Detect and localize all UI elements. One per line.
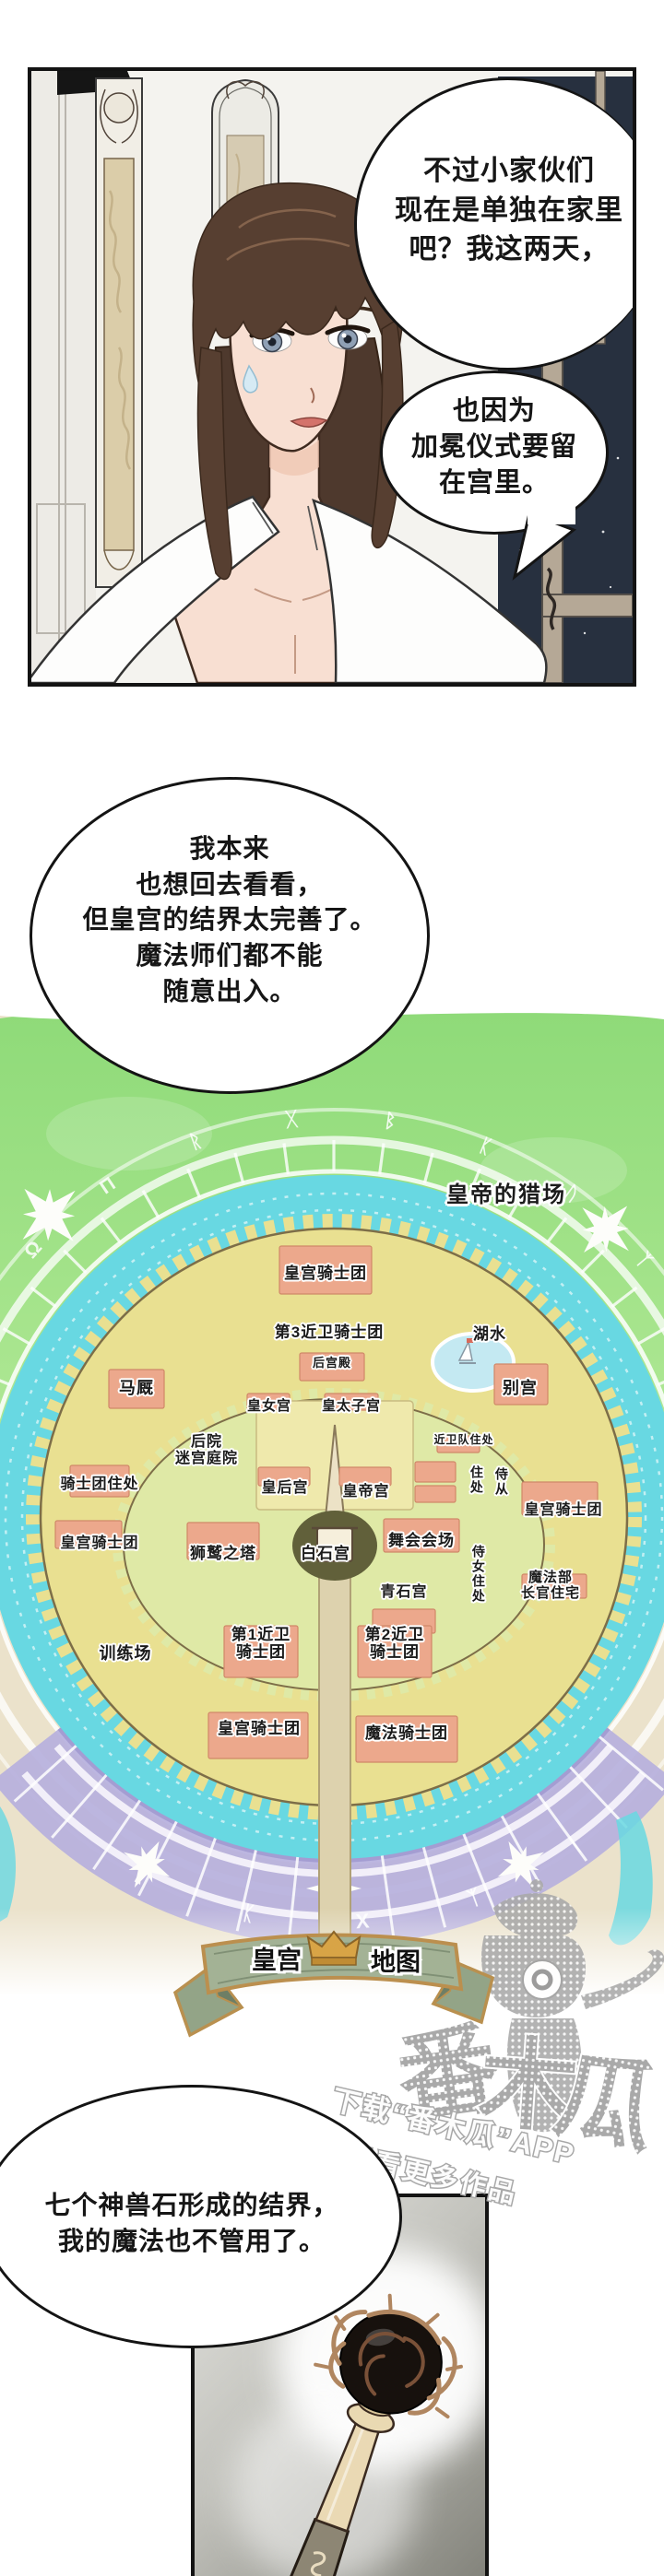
bubble-tail: [31, 71, 633, 683]
speech-text-3: 我本来 也想回去看看， 但皇宫的结界太完善了。 魔法师们都不能 随意出入。: [32, 831, 427, 1009]
palace-map-illustration: ᛉΩΠᚱᚷᛒᛕᚢᛉᛁᛉXᛕᚱ: [0, 977, 664, 2000]
speech-bubble-4: 七个神兽石形成的结界， 我的魔法也不管用了。: [0, 2085, 402, 2348]
svg-text:ᚷ: ᚷ: [284, 1109, 299, 1131]
palace-map-banner: 皇宫 地图: [157, 1919, 526, 2071]
panel-room-scene: 不过小家伙们 现在是单独在家里 吧？我这两天， 也因为 加冕仪式要留 在宫里。: [28, 67, 636, 687]
white-stone-palace: [317, 1528, 352, 1561]
banner-text-left: 皇宫: [252, 1946, 302, 1974]
speech-text-4: 七个神兽石形成的结界， 我的魔法也不管用了。: [0, 2187, 399, 2259]
comic-page: 不过小家伙们 现在是单独在家里 吧？我这两天， 也因为 加冕仪式要留 在宫里。 …: [0, 0, 664, 2576]
palace-map-panel: ᛉΩΠᚱᚷᛒᛕᚢᛉᛁᛉXᛕᚱ: [0, 977, 664, 2000]
speech-bubble-3: 我本来 也想回去看看， 但皇宫的结界太完善了。 魔法师们都不能 随意出入。: [30, 777, 430, 1094]
banner-text-right: 地图: [371, 1948, 421, 1976]
